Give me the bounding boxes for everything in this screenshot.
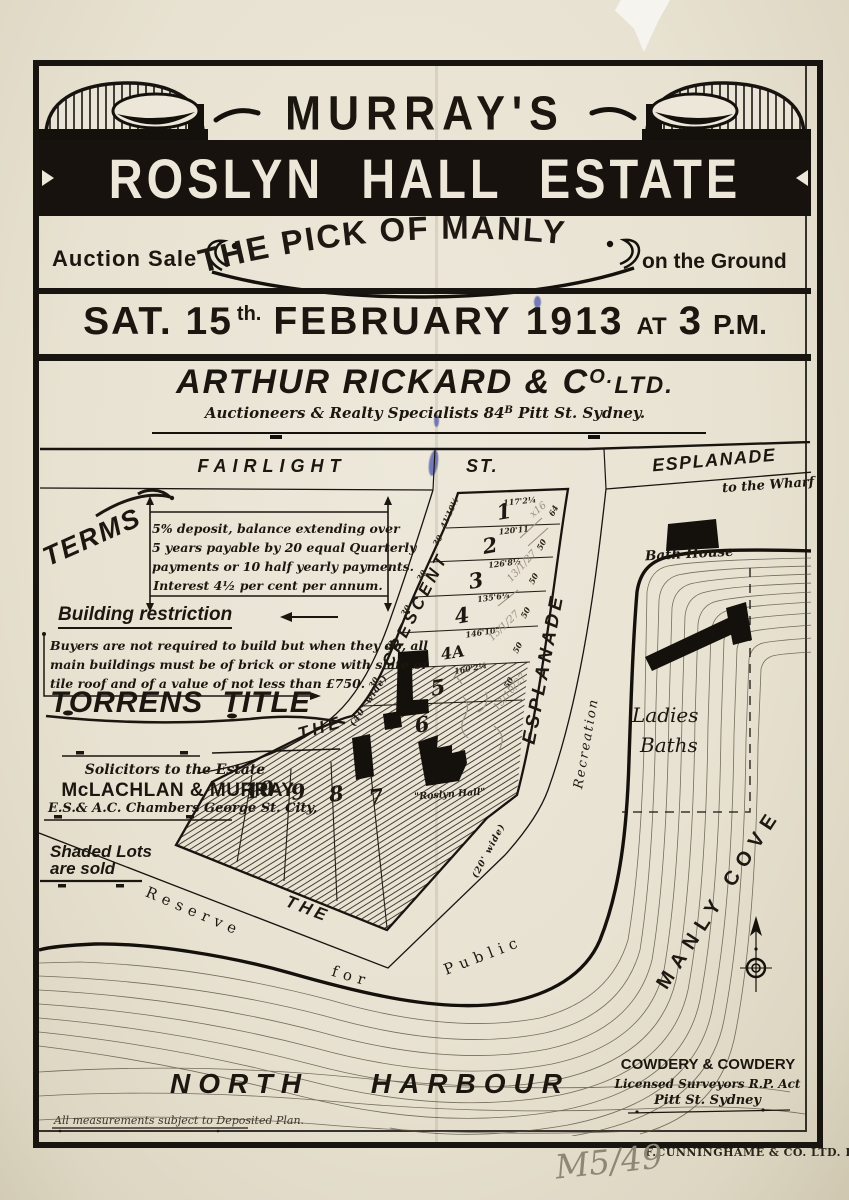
- dim-lot1-left: 41'10½: [438, 496, 461, 530]
- agent-name-main: ARTHUR RICKARD & C: [176, 363, 589, 401]
- agent-name: ARTHUR RICKARD & CO.LTD.: [39, 363, 811, 402]
- on-the-ground-label: on the Ground: [642, 250, 787, 274]
- lithographer-credit: F.CUNNINGHAME & CO. LTD. LITHO.: [645, 1146, 849, 1159]
- date-pm: P.M.: [713, 309, 767, 341]
- estate-title: ROSLYN HALL ESTATE: [109, 146, 742, 211]
- brand-title: MURRAY'S: [230, 87, 620, 142]
- date-time: 3: [679, 299, 701, 344]
- agent-subtitle-sup: B: [505, 405, 513, 416]
- shaded-lots-line2: are sold: [50, 860, 152, 877]
- lot-4: 4: [453, 602, 472, 629]
- torrens-title-label: TORRENS TITLE: [50, 686, 311, 720]
- headline-arch: THE PICK OF MANLY: [182, 208, 660, 300]
- surveyor-line3: Pitt St. Sydney: [600, 1093, 815, 1108]
- agent-name-co: O.: [589, 366, 614, 388]
- reserve-word-4: Recreation: [571, 697, 602, 791]
- baths-enclosure-dashed: [622, 568, 750, 812]
- auction-sale-label: Auction Sale: [52, 246, 197, 272]
- solicitors-name: McLACHLAN & MURRAY: [48, 780, 308, 802]
- dim-30: 30: [430, 533, 445, 548]
- fairlight-street-label: FAIRLIGHT: [182, 456, 362, 477]
- reserve-word-1: Reserve: [143, 883, 245, 940]
- surveyor-name: COWDERY & COWDERY: [608, 1056, 808, 1073]
- st-label: ST.: [466, 456, 499, 477]
- surveyor-line2: Licensed Surveyors R.P. Act: [600, 1077, 815, 1091]
- banner-notch-left: [42, 170, 54, 186]
- jetty: [645, 602, 752, 671]
- dim-lot1-top: 117'2¼: [503, 494, 537, 507]
- building-line: Buyers are not required to build but whe…: [50, 636, 402, 655]
- reserve-word-3: Public: [441, 932, 525, 979]
- ladies-line: Ladies: [632, 700, 699, 730]
- dim-lot1-bottom: 120'11: [498, 523, 529, 536]
- terms-text: 5% deposit, balance extending over 5 yea…: [152, 519, 384, 595]
- shaded-lots-note: Shaded Lots are sold: [50, 843, 152, 877]
- ladies-baths-label: Ladies Baths: [632, 700, 699, 760]
- headline-text: THE PICK OF MANLY: [195, 209, 569, 280]
- date-month-year: FEBRUARY 1913: [273, 300, 624, 344]
- solicitors-address: E.S.& A.C. Chambers George St. City,: [48, 801, 308, 816]
- auction-date-row: SAT. 15 th. FEBRUARY 1913 AT 3 P.M.: [39, 299, 811, 353]
- compass-north-arrow: [740, 916, 772, 992]
- estate-banner: ROSLYN HALL ESTATE: [39, 140, 811, 216]
- divider-rule: [39, 288, 811, 294]
- terms-line: 5% deposit, balance extending over: [152, 519, 384, 538]
- scroll-ornament-right: [642, 83, 811, 140]
- lot-4a: 4A: [439, 641, 465, 664]
- agent-name-ltd: LTD.: [614, 372, 674, 399]
- dim-50: 50: [510, 640, 524, 655]
- flourish-curl-right: [620, 240, 639, 268]
- agent-subtitle-tail: Pitt St. Sydney.: [513, 404, 645, 422]
- building-restriction-text: Buyers are not required to build but whe…: [50, 636, 402, 693]
- agent-subtitle-main: Auctioneers & Realty Specialists 84: [205, 404, 505, 422]
- dim-50: 50: [526, 571, 540, 586]
- solicitors-caption: Solicitors to the Estate: [60, 762, 290, 778]
- building-restriction-heading: Building restriction: [58, 604, 232, 629]
- lot-2: 2: [480, 532, 500, 559]
- date-ordinal: th.: [237, 303, 261, 326]
- building-line: main buildings must be of brick or stone…: [50, 655, 402, 674]
- date-day: SAT. 15: [83, 300, 233, 344]
- divider-rule-2: [39, 354, 811, 361]
- scroll-ornament-left: [39, 83, 208, 140]
- flourish-dot-right: [607, 241, 613, 247]
- baths-line: Baths: [640, 730, 699, 760]
- paper-tear-patch: [612, 0, 670, 52]
- terms-line: payments or 10 half yearly payments.: [152, 557, 384, 576]
- shaded-lots-line1: Shaded Lots: [50, 843, 152, 860]
- dim-64: 64: [546, 503, 560, 518]
- poster-page: MURRAY'S ROSLYN HALL ESTATE Auction Sale…: [0, 0, 849, 1200]
- crescent-building-2: [383, 711, 402, 730]
- agent-subtitle: Auctioneers & Realty Specialists 84B Pit…: [39, 404, 811, 422]
- terms-line: Interest 4½ per cent per annum.: [152, 576, 384, 595]
- dim-50: 50: [534, 537, 548, 552]
- banner-notch-right: [796, 170, 808, 186]
- terms-line: 5 years payable by 20 equal Quarterly: [152, 538, 384, 557]
- north-harbour-label: NORTH HARBOUR: [90, 1068, 650, 1100]
- agent-flourish: [140, 427, 720, 441]
- date-at: AT: [636, 313, 666, 341]
- lot-3: 3: [467, 567, 486, 594]
- measurements-note: All measurements subject to Deposited Pl…: [54, 1114, 304, 1127]
